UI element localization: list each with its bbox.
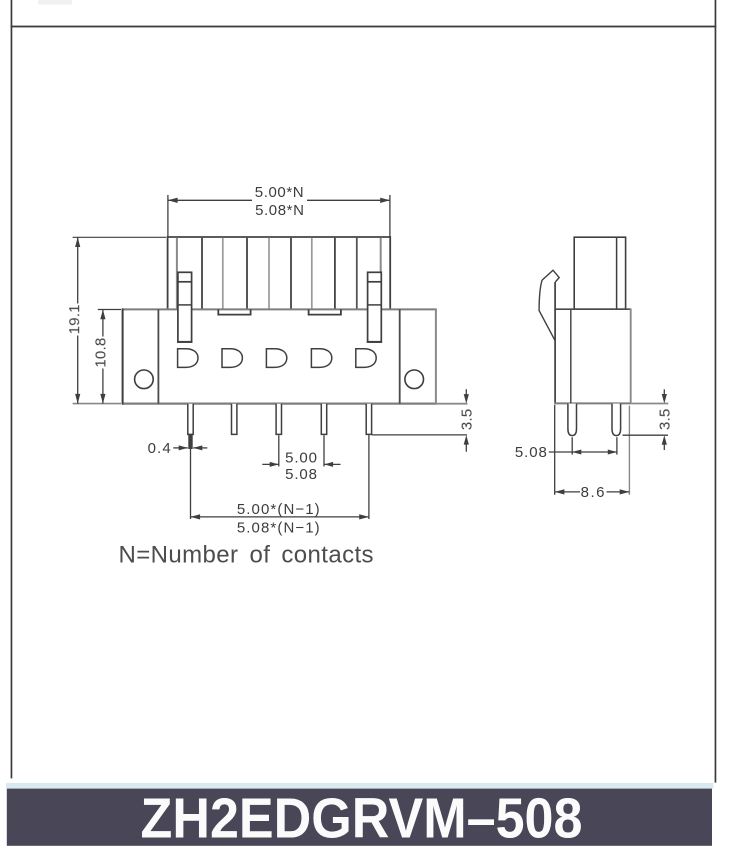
svg-text:3.5: 3.5 [459,409,476,430]
svg-text:5.08*(N−1): 5.08*(N−1) [237,520,321,537]
svg-text:19.1: 19.1 [66,304,83,334]
svg-text:0.4: 0.4 [148,440,172,457]
svg-text:5.08*N: 5.08*N [255,202,304,219]
svg-text:5.08: 5.08 [515,444,548,461]
svg-text:5.08: 5.08 [285,466,318,483]
svg-text:10.8: 10.8 [92,338,109,368]
svg-text:5.00*N: 5.00*N [255,184,304,201]
svg-text:N=Number of contacts: N=Number of contacts [119,541,374,568]
svg-text:5.00: 5.00 [285,449,318,466]
svg-text:8.6: 8.6 [581,484,606,501]
svg-text:3.5: 3.5 [657,409,674,430]
svg-text:5.00*(N−1): 5.00*(N−1) [237,501,321,518]
svg-text:ZH2EDGRVM–508: ZH2EDGRVM–508 [141,786,583,849]
